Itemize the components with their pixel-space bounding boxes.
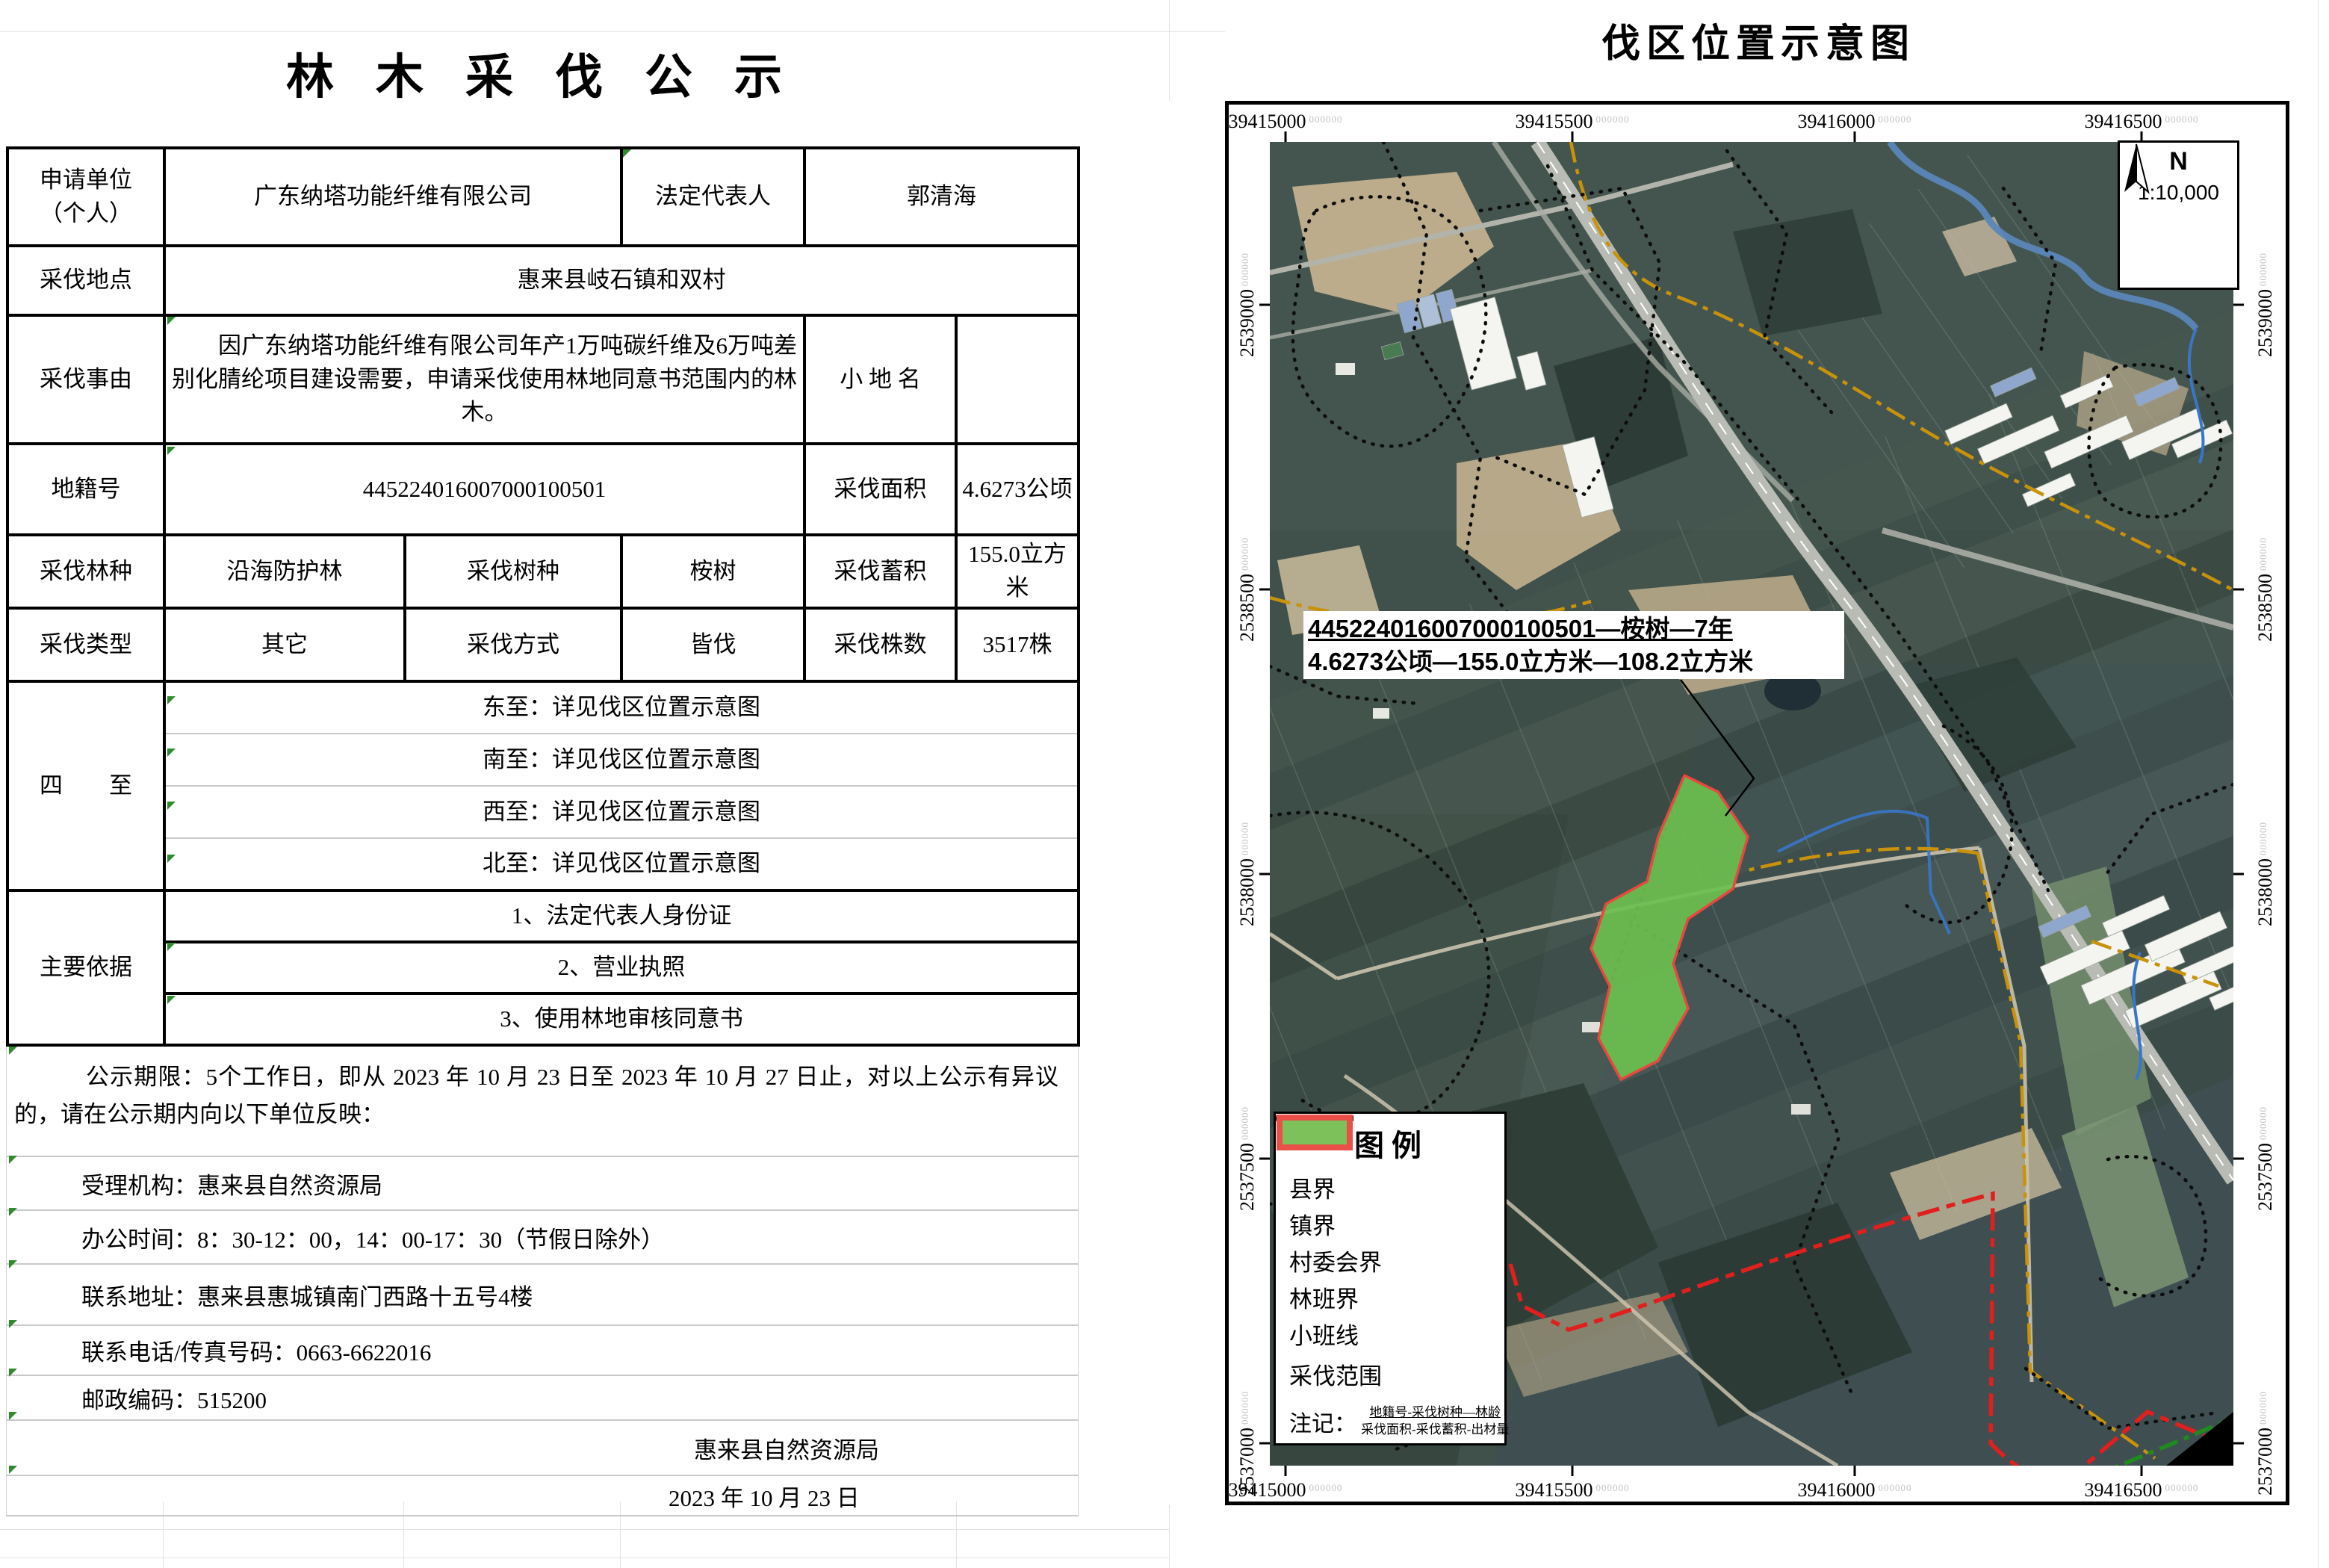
grid-tick [1259,304,1270,306]
cell-flag-icon [9,1208,17,1216]
harvest-area-icon [1276,1114,1353,1151]
grid-tick [1572,1466,1574,1476]
cut-type-label: 采伐类型 [7,608,164,681]
cell-flag-icon [9,1369,17,1377]
grid-x-label: 39416500000000 [2085,111,2199,133]
method-label: 采伐方式 [405,608,621,681]
grid-tick [2233,589,2244,591]
grid-tick [1285,131,1287,142]
sheet-gridline [0,1558,1169,1558]
date-text: 2023 年 10 月 23 日 [7,1476,1078,1516]
basis-item-3: 3、使用林地审核同意书 [164,994,1079,1045]
grid-y-label: 2538500000000 [2254,537,2277,642]
grid-tick [2233,304,2244,306]
north-label: N [2169,147,2188,176]
map-panel: 伐区位置示意图 39415000000000 39415500000000 39… [1225,0,2292,1509]
applicant-label: 申请单位 （个人） [7,148,164,246]
area-label: 采伐面积 [804,444,956,535]
cell-flag-icon [9,1156,17,1164]
grid-x-label: 39416500000000 [2085,1479,2199,1502]
species-label: 采伐树种 [405,535,621,608]
notice-document: 林 木 采 伐 公 示 申请单位 （个人） 广东纳塔功能纤维有限公司 法定代表人… [6,0,1077,1516]
notice-footer: 公示期限：5个工作日，即从 2023 年 10 月 23 日至 2023 年 1… [6,1047,1079,1516]
applicant-value: 广东纳塔功能纤维有限公司 [164,148,621,246]
volume-label: 采伐蓄积 [804,535,956,608]
cell-flag-icon [167,802,176,810]
grid-tick [1259,1443,1270,1445]
location-label: 采伐地点 [7,246,164,315]
forest-type-label: 采伐林种 [7,535,164,608]
cell-flag-icon [623,149,631,158]
office-hours-text: 办公时间：8：30-12：00，14：00-17：30（节假日除外） [7,1211,1078,1265]
reason-label: 采伐事由 [7,315,164,444]
signature-text: 惠来县自然资源局 [7,1421,1078,1476]
grid-tick [1285,1466,1287,1476]
cut-type-value: 其它 [164,608,405,681]
postcode-text: 邮政编码：515200 [7,1376,1078,1421]
grid-tick [1854,1466,1856,1476]
cell-flag-icon [167,317,176,325]
grid-tick [1259,1158,1270,1160]
grid-tick [2141,1466,2143,1476]
legal-rep-label: 法定代表人 [621,148,804,246]
parcel-label: 445224016007000100501—桉树—7年 4.6273公顷—155… [1303,611,1844,679]
count-value: 3517株 [956,608,1079,681]
sheet-gridline [1169,0,1170,101]
contact-phone-text: 联系电话/传真号码：0663-6622016 [7,1326,1078,1376]
forest-type-value: 沿海防护林 [164,535,405,608]
cadastral-value: 445224016007000100501 [164,444,804,535]
cell-flag-icon [167,996,176,1004]
map-title: 伐区位置示意图 [1225,12,2292,68]
volume-value: 155.0立方米 [956,535,1079,608]
legend-item-forest: 林班界 [1289,1279,1494,1316]
map-legend: 图例 县界 镇界 村委会界 林班界 [1274,1112,1507,1445]
legend-note: 注记： 地籍号-采伐树种—林龄 采伐面积-采伐蓄积-出材量 [1289,1404,1494,1439]
grid-x-label: 39415500000000 [1516,1479,1630,1502]
contact-address-text: 联系地址：惠来县惠城镇南门西路十五号4楼 [7,1265,1078,1326]
parcel-label-line2: 4.6273公顷—155.0立方米—108.2立方米 [1308,645,1840,678]
cell-flag-icon [167,447,176,455]
legend-note-line1: 地籍号-采伐树种—林龄 [1361,1404,1509,1422]
cell-flag-icon [167,749,176,757]
grid-y-label: 2537000000000 [1236,1391,1259,1496]
publicity-period-text: 公示期限：5个工作日，即从 2023 年 10 月 23 日至 2023 年 1… [7,1047,1078,1133]
grid-y-label: 2537500000000 [1236,1106,1259,1211]
bounds-south: 南至：详见伐区位置示意图 [164,734,1079,786]
count-label: 采伐株数 [804,608,956,681]
cell-flag-icon [167,943,176,951]
method-value: 皆伐 [621,608,804,681]
grid-x-label: 39415000000000 [1229,111,1343,133]
grid-y-label: 2538000000000 [2254,822,2277,926]
reason-value: 因广东纳塔功能纤维有限公司年产1万吨碳纤维及6万吨差别化腈纶项目建设需要，申请采… [164,315,804,444]
cadastral-label: 地籍号 [7,444,164,535]
cell-flag-icon [167,696,176,704]
bounds-north: 北至：详见伐区位置示意图 [164,838,1079,890]
legend-item-subcompartment: 小班线 [1289,1316,1494,1352]
legend-item-harvest: 采伐范围 [1289,1352,1494,1397]
grid-y-label: 2538000000000 [1236,822,1259,926]
grid-y-label: 2537000000000 [2254,1391,2277,1496]
basis-label: 主要依据 [7,890,164,1045]
bounds-east: 东至：详见伐区位置示意图 [164,681,1079,734]
sheet-gridline [2318,0,2319,1568]
north-arrow-icon [2120,143,2153,198]
grid-tick [1854,131,1856,142]
cell-flag-icon [9,1466,17,1474]
place-name-value [956,315,1079,444]
grid-y-label: 2538500000000 [1236,537,1259,642]
cell-flag-icon [9,1320,17,1328]
satellite-image: 445224016007000100501—桉树—7年 4.6273公顷—155… [1270,142,2233,1466]
basis-item-1: 1、法定代表人身份证 [164,890,1079,942]
grid-y-label: 2539000000000 [2254,252,2277,357]
grid-tick [2233,1443,2244,1445]
compass-box: N 1:10,000 [2118,140,2239,290]
bounds-west: 西至：详见伐区位置示意图 [164,786,1079,838]
legend-item-town: 镇界 [1289,1206,1494,1242]
grid-tick [1259,589,1270,591]
place-name-label: 小 地 名 [804,315,956,444]
grid-y-label: 2537500000000 [2254,1106,2277,1211]
species-value: 桉树 [621,535,804,608]
legend-item-village: 村委会界 [1289,1242,1494,1279]
grid-tick [1572,131,1574,142]
area-value: 4.6273公顷 [956,444,1079,535]
grid-tick [2233,1158,2244,1160]
cell-flag-icon [167,855,176,863]
bounds-label: 四 至 [7,681,164,890]
legend-item-county: 县界 [1289,1169,1494,1206]
map-frame: 39415000000000 39415500000000 3941600000… [1225,101,2289,1505]
grid-x-label: 39416000000000 [1798,111,1912,133]
cell-flag-icon [9,1412,17,1420]
cell-flag-icon [9,1047,17,1055]
location-value: 惠来县岐石镇和双村 [164,246,1079,315]
grid-tick [1259,873,1270,876]
grid-tick [2233,873,2244,876]
parcel-label-line1: 445224016007000100501—桉树—7年 [1308,613,1840,645]
notice-table: 申请单位 （个人） 广东纳塔功能纤维有限公司 法定代表人 郭清海 采伐地点 惠来… [6,146,1080,1047]
grid-x-label: 39416000000000 [1798,1479,1912,1502]
cell-flag-icon [9,1260,17,1268]
sheet-gridline [1169,1505,1170,1568]
grid-x-label: 39415500000000 [1516,111,1630,133]
legend-note-line2: 采伐面积-采伐蓄积-出材量 [1361,1422,1509,1437]
legal-rep-value: 郭清海 [804,148,1079,246]
page-title: 林 木 采 伐 公 示 [6,0,1077,146]
forestry-harvest-notice-page: 林 木 采 伐 公 示 申请单位 （个人） 广东纳塔功能纤维有限公司 法定代表人… [0,0,2329,1568]
basis-item-2: 2、营业执照 [164,942,1079,994]
accepting-agency-text: 受理机构：惠来县自然资源局 [7,1157,1078,1211]
grid-y-label: 2539000000000 [1236,252,1259,357]
sheet-gridline [0,1529,1169,1530]
